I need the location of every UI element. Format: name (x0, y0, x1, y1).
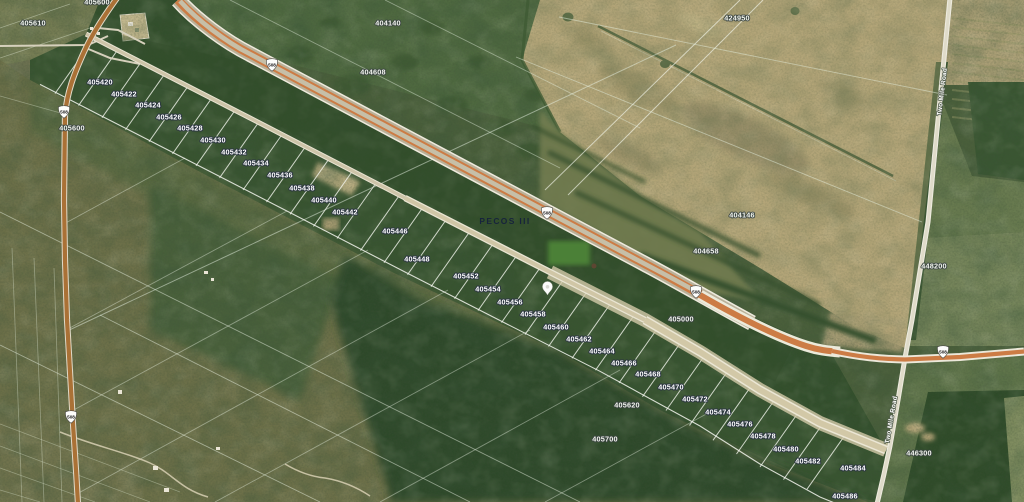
svg-text:405000: 405000 (668, 315, 694, 324)
svg-text:405432: 405432 (221, 148, 247, 157)
svg-text:405474: 405474 (705, 408, 731, 417)
svg-text:405446: 405446 (382, 227, 408, 236)
svg-text:PECOS III: PECOS III (479, 216, 530, 226)
svg-text:405464: 405464 (589, 347, 615, 356)
svg-text:405600: 405600 (59, 124, 85, 133)
svg-text:405610: 405610 (20, 19, 46, 28)
svg-text:405466: 405466 (611, 359, 637, 368)
svg-text:405424: 405424 (135, 101, 161, 110)
svg-text:405456: 405456 (497, 298, 523, 307)
svg-text:405438: 405438 (289, 184, 315, 193)
svg-text:405600: 405600 (84, 0, 110, 7)
svg-text:405436: 405436 (267, 171, 293, 180)
svg-text:405458: 405458 (520, 310, 546, 319)
svg-text:405420: 405420 (87, 78, 113, 87)
svg-text:405478: 405478 (750, 432, 776, 441)
svg-text:405452: 405452 (453, 272, 479, 281)
svg-text:405486: 405486 (832, 492, 858, 501)
svg-text:405440: 405440 (311, 196, 337, 205)
svg-text:405482: 405482 (795, 457, 821, 466)
svg-text:424950: 424950 (724, 14, 750, 23)
svg-text:404658: 404658 (693, 247, 719, 256)
svg-text:405620: 405620 (614, 401, 640, 410)
svg-text:405700: 405700 (592, 435, 618, 444)
svg-text:405422: 405422 (111, 90, 137, 99)
svg-text:404140: 404140 (375, 19, 401, 28)
svg-text:405426: 405426 (156, 113, 182, 122)
svg-text:405484: 405484 (840, 464, 866, 473)
svg-text:405454: 405454 (475, 285, 501, 294)
svg-text:405460: 405460 (543, 323, 569, 332)
svg-text:405470: 405470 (658, 383, 684, 392)
svg-text:405448: 405448 (404, 255, 430, 264)
svg-text:405480: 405480 (773, 445, 799, 454)
svg-text:446300: 446300 (906, 449, 932, 458)
svg-text:448200: 448200 (921, 262, 947, 271)
svg-text:405472: 405472 (682, 395, 708, 404)
svg-text:405434: 405434 (243, 159, 269, 168)
svg-text:404146: 404146 (729, 211, 755, 220)
svg-text:405476: 405476 (727, 420, 753, 429)
svg-text:405468: 405468 (635, 370, 661, 379)
svg-text:405428: 405428 (177, 124, 203, 133)
svg-text:405430: 405430 (200, 136, 226, 145)
svg-text:404608: 404608 (360, 68, 386, 77)
svg-text:405442: 405442 (332, 208, 358, 217)
svg-text:405462: 405462 (566, 335, 592, 344)
